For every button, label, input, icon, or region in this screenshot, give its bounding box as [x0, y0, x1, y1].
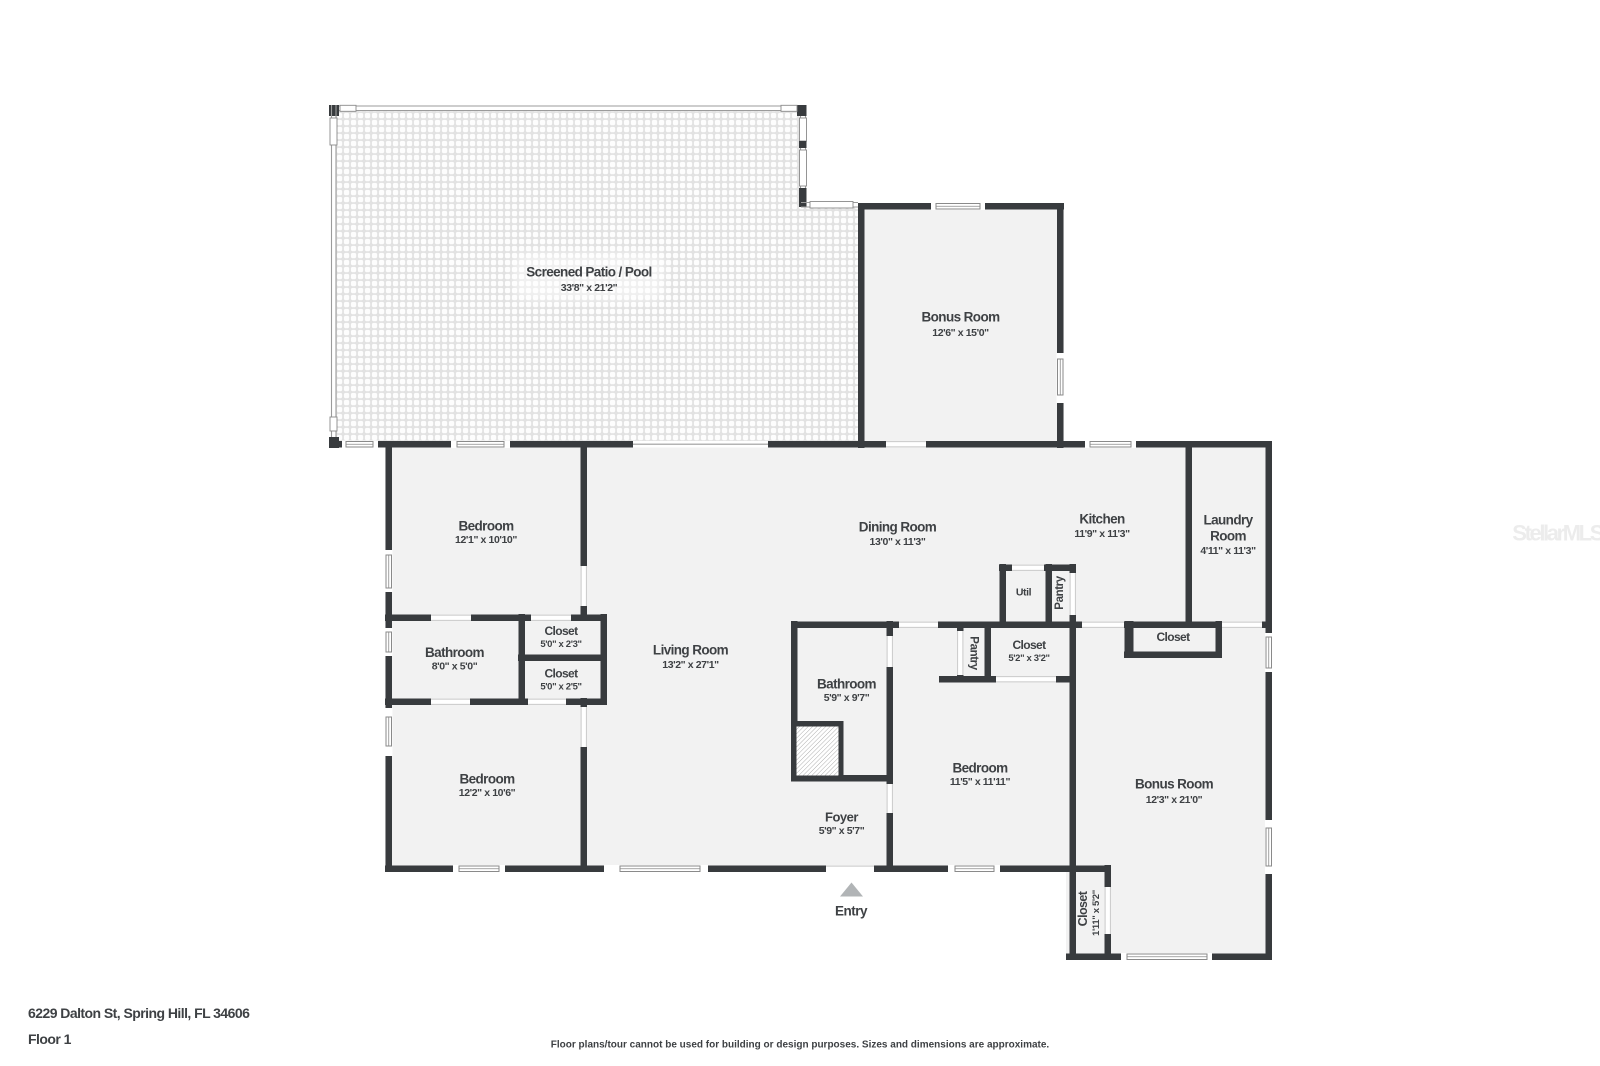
- svg-text:5'0" x 2'3": 5'0" x 2'3": [540, 639, 581, 650]
- svg-text:12'6" x 15'0": 12'6" x 15'0": [932, 327, 989, 339]
- svg-text:Pantry: Pantry: [1054, 575, 1066, 609]
- svg-text:Pantry: Pantry: [968, 636, 980, 670]
- svg-text:Bonus Room: Bonus Room: [1135, 777, 1214, 792]
- svg-text:Laundry: Laundry: [1203, 513, 1253, 528]
- svg-text:Closet: Closet: [544, 624, 578, 638]
- svg-text:11'5" x 11'11": 11'5" x 11'11": [950, 776, 1011, 788]
- svg-text:Bedroom: Bedroom: [952, 761, 1008, 776]
- svg-text:8'0" x 5'0": 8'0" x 5'0": [432, 661, 478, 673]
- svg-text:13'0" x 11'3": 13'0" x 11'3": [870, 536, 926, 548]
- svg-text:5'9" x 5'7": 5'9" x 5'7": [819, 825, 865, 837]
- svg-text:Bathroom: Bathroom: [425, 645, 485, 660]
- svg-text:1'11" x 5'2": 1'11" x 5'2": [1091, 890, 1102, 936]
- svg-text:StellarMLS: StellarMLS: [1512, 521, 1600, 546]
- svg-text:Bedroom: Bedroom: [458, 519, 514, 534]
- svg-text:6229 Dalton St, Spring Hill, F: 6229 Dalton St, Spring Hill, FL 34606: [28, 1005, 250, 1021]
- svg-text:Floor 1: Floor 1: [28, 1031, 72, 1047]
- svg-text:Living Room: Living Room: [653, 643, 729, 658]
- svg-text:12'1" x 10'10": 12'1" x 10'10": [455, 534, 517, 546]
- svg-text:Entry: Entry: [835, 904, 868, 919]
- svg-text:Screened Patio / Pool: Screened Patio / Pool: [526, 265, 651, 280]
- svg-text:Kitchen: Kitchen: [1079, 512, 1125, 527]
- svg-text:Closet: Closet: [1076, 890, 1090, 926]
- svg-text:4'11" x 11'3": 4'11" x 11'3": [1200, 545, 1256, 557]
- svg-text:5'0" x 2'5": 5'0" x 2'5": [540, 682, 581, 693]
- svg-text:Room: Room: [1210, 529, 1246, 544]
- svg-text:Bonus Room: Bonus Room: [922, 310, 1001, 325]
- svg-text:Closet: Closet: [544, 667, 578, 681]
- svg-text:Bedroom: Bedroom: [459, 772, 515, 787]
- svg-text:Closet: Closet: [1156, 630, 1190, 644]
- svg-text:12'3" x 21'0": 12'3" x 21'0": [1146, 794, 1203, 806]
- svg-text:5'2" x 3'2": 5'2" x 3'2": [1008, 653, 1049, 664]
- svg-text:Foyer: Foyer: [825, 810, 858, 825]
- svg-text:Util: Util: [1016, 587, 1032, 599]
- svg-text:12'2" x 10'6": 12'2" x 10'6": [459, 787, 516, 799]
- svg-text:33'8" x 21'2": 33'8" x 21'2": [561, 282, 618, 294]
- svg-text:Closet: Closet: [1012, 638, 1046, 652]
- svg-text:5'9" x 9'7": 5'9" x 9'7": [824, 692, 870, 704]
- svg-text:11'9" x 11'3": 11'9" x 11'3": [1074, 528, 1130, 540]
- svg-text:Bathroom: Bathroom: [817, 677, 877, 692]
- svg-text:Floor plans/tour cannot be use: Floor plans/tour cannot be used for buil…: [551, 1040, 1050, 1051]
- svg-text:Dining Room: Dining Room: [859, 520, 937, 535]
- svg-text:13'2" x 27'1": 13'2" x 27'1": [662, 659, 719, 671]
